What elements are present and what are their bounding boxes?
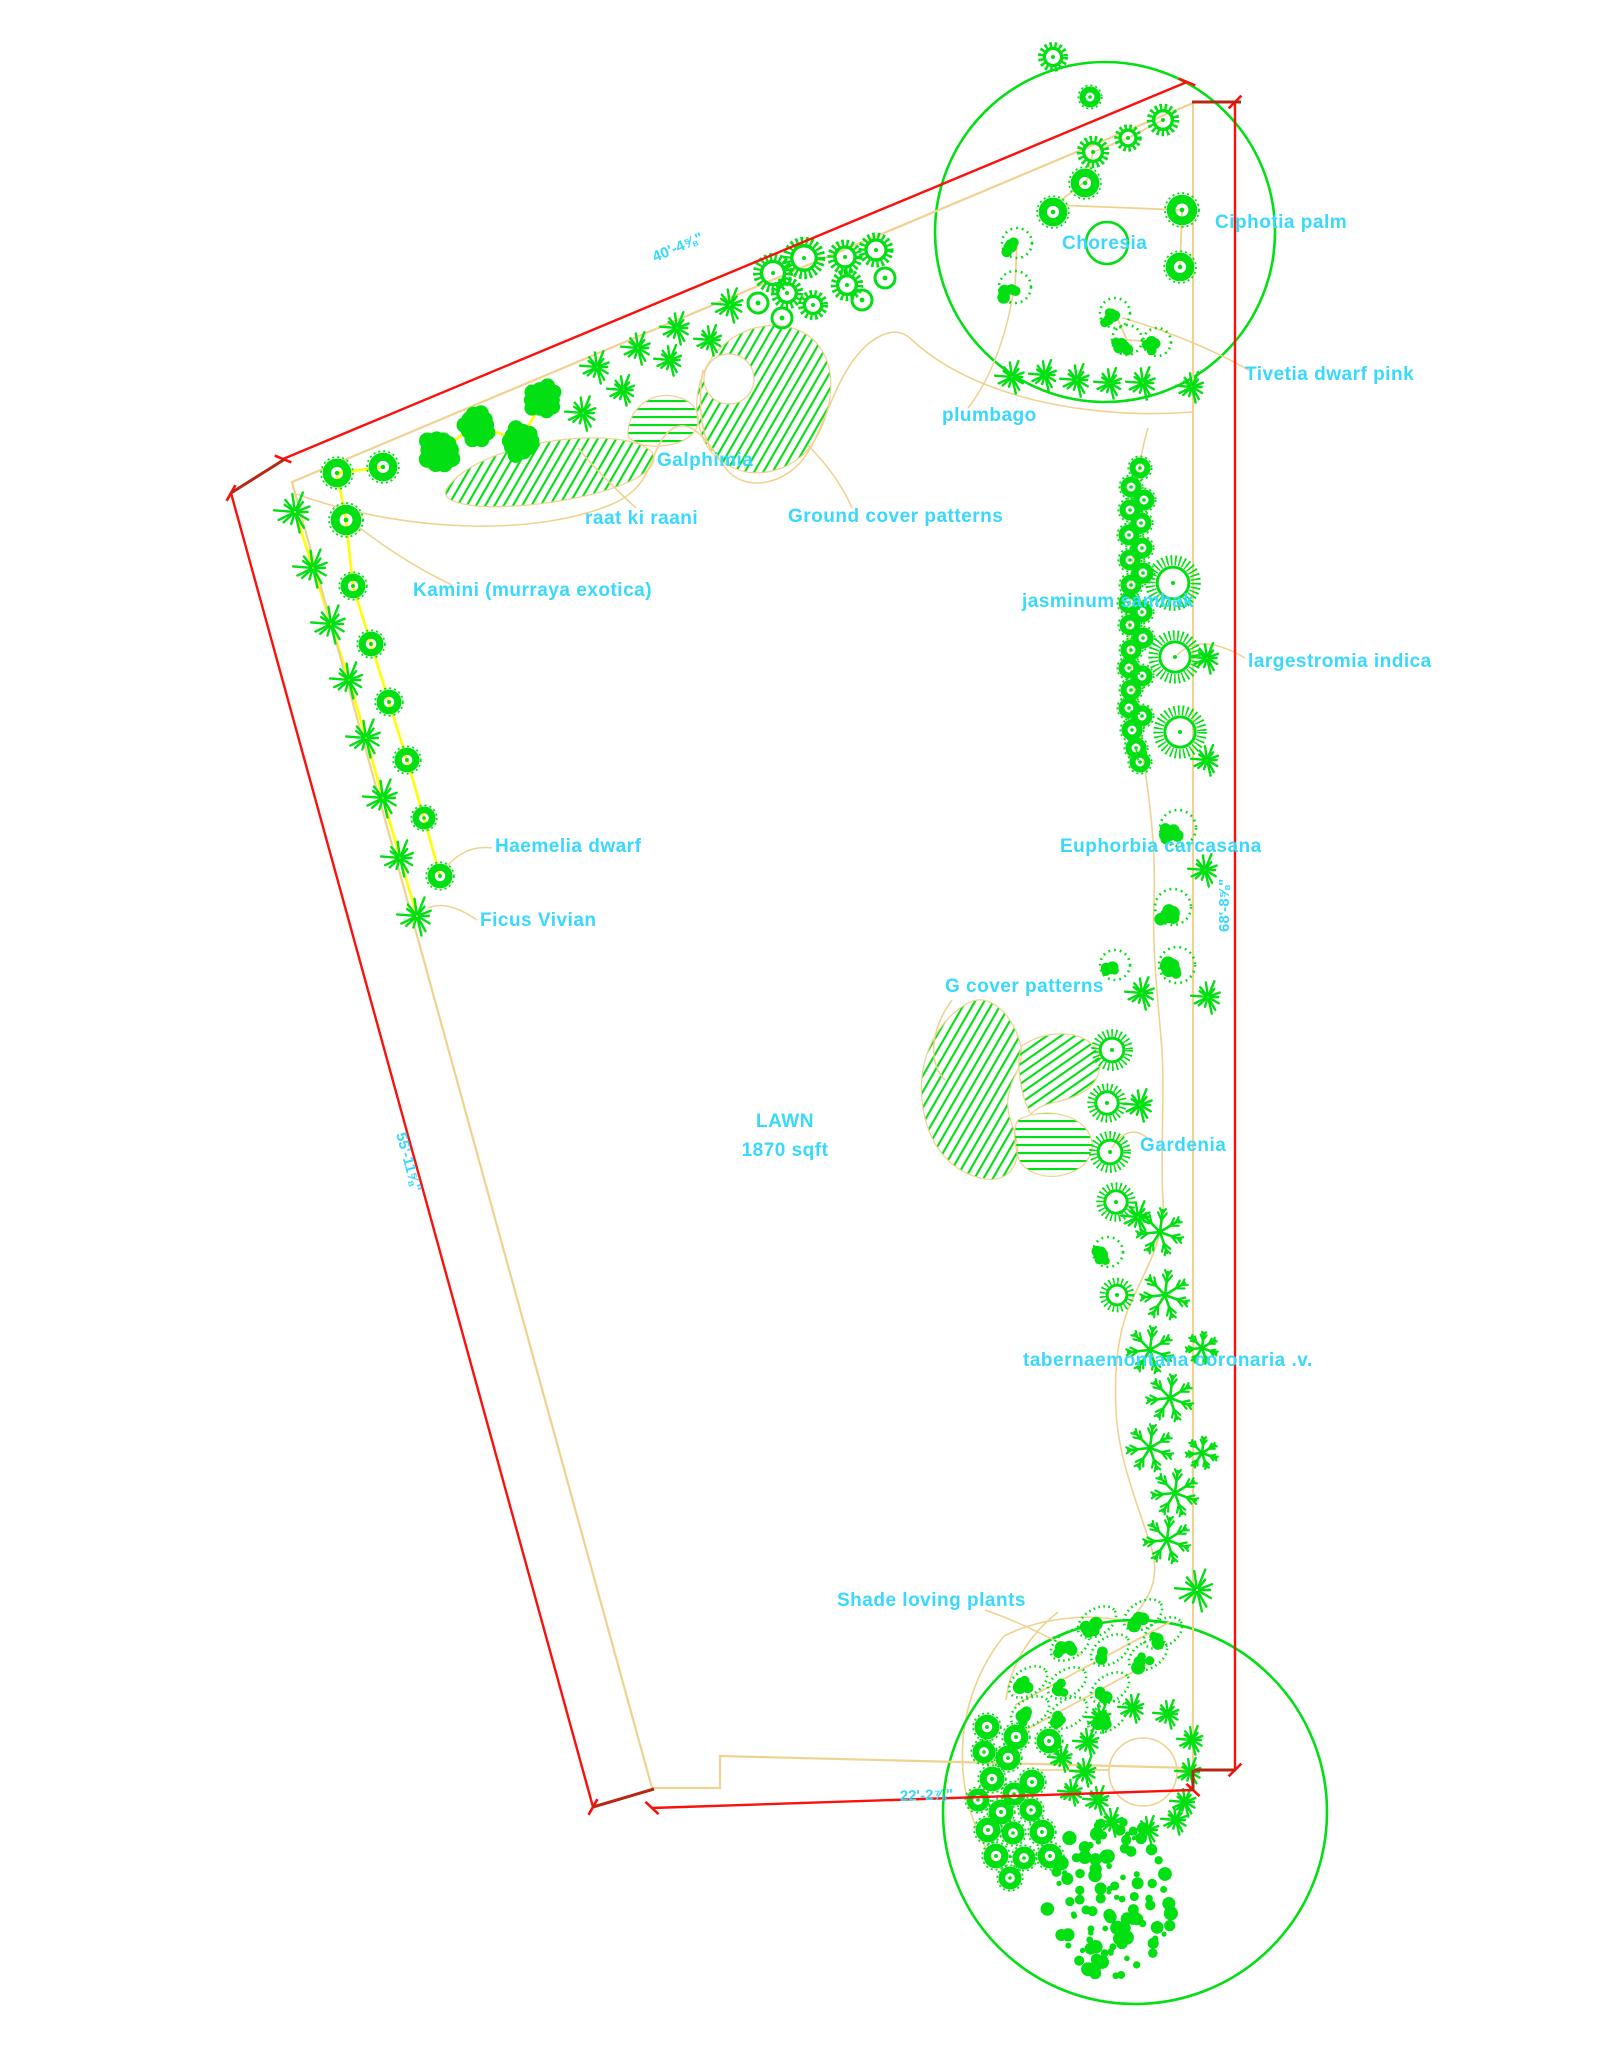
plant-open: [748, 293, 768, 313]
plant-star: [274, 493, 309, 533]
label-leader-line: [808, 445, 852, 508]
plant-star: [1175, 1758, 1200, 1787]
plant-label: Tivetia dwarf pink: [1245, 364, 1414, 385]
dimension-text: 68'-8⅝": [1216, 879, 1233, 932]
plant-dshrub: [1159, 947, 1195, 983]
plant-label: Gardenia: [1140, 1135, 1226, 1156]
plant-gear: [801, 293, 825, 317]
lawn-label: LAWN: [756, 1111, 814, 1132]
plant-label: Choresia: [1062, 233, 1147, 254]
plant-dshrub: [1100, 298, 1130, 328]
plant-dshrub: [1092, 1237, 1123, 1267]
plant-star: [1123, 1089, 1152, 1121]
groundcover-blob: [921, 1000, 1021, 1180]
plant-jring: [978, 1765, 1006, 1793]
plant-label: largestromia indica: [1248, 651, 1432, 672]
cad-canvas[interactable]: 40'-4⅝"55'-11⅝"68'-8⅝"22'-2⅞" Ciphotia p…: [0, 0, 1600, 2071]
plant-gear: [1117, 127, 1139, 149]
plant-star: [1094, 368, 1121, 398]
plant-ring: [329, 503, 363, 537]
plant-star: [694, 325, 721, 355]
plant-urchin: [1093, 1135, 1127, 1169]
plant-label: Shade loving plants: [837, 1590, 1026, 1611]
plant-gear: [834, 272, 860, 298]
plant-ring: [357, 630, 385, 658]
plant-star: [1176, 372, 1203, 402]
plant-label: Euphorbia carcasana: [1060, 836, 1262, 857]
plant-star: [1177, 1726, 1202, 1755]
plant-jring: [973, 1713, 1001, 1741]
plant-star: [1118, 1694, 1143, 1723]
plant-snow: [1143, 1516, 1190, 1563]
plant-bushy: [524, 378, 562, 418]
plant-snow: [1126, 1424, 1173, 1471]
plant-dshrub: [1154, 889, 1191, 925]
plant-star: [621, 332, 650, 364]
plant-ring: [393, 746, 421, 774]
plant-label: Ciphotia palm: [1215, 212, 1347, 233]
plant-star: [565, 396, 595, 430]
plant-star: [1153, 1700, 1178, 1729]
lawn-area-label: 1870 sqft: [742, 1140, 829, 1161]
plant-jring: [1128, 750, 1151, 773]
plant-label: Kamini (murraya exotica): [413, 580, 652, 601]
plant-snow: [1151, 1469, 1198, 1516]
plant-star: [330, 662, 362, 698]
plant-ring: [321, 457, 353, 489]
plant-urchin: [1103, 1281, 1132, 1310]
plant-doval: [1118, 1593, 1167, 1637]
plant-label: Ficus Vivian: [480, 910, 597, 931]
plant-gear: [831, 243, 859, 271]
plant-bushy: [419, 431, 460, 472]
plant-doval: [1123, 1633, 1173, 1678]
plant-label: Ground cover patterns: [788, 506, 1003, 527]
label-leader-line: [443, 848, 492, 872]
plant-star: [1191, 981, 1220, 1013]
plant-ring: [375, 688, 403, 716]
label-leader-line: [428, 906, 477, 920]
labels-layer: Ciphotia palmChoresiaTivetia dwarf pinkp…: [413, 212, 1432, 1611]
plant-ring: [1069, 167, 1101, 199]
plant-open: [852, 290, 872, 310]
landscape-plan-svg: 40'-4⅝"55'-11⅝"68'-8⅝"22'-2⅞" Ciphotia p…: [0, 0, 1600, 2071]
plant-gear: [1080, 139, 1106, 165]
label-leader-line: [352, 522, 452, 585]
plant-gear: [1041, 45, 1065, 69]
plant-open: [772, 308, 792, 328]
groundcover-blob: [1015, 1113, 1093, 1176]
plant-star: [654, 345, 681, 375]
plant-label: tabernaemontana coronaria .v.: [1023, 1350, 1313, 1371]
plant-star: [580, 351, 609, 383]
tan-circle: [1109, 1738, 1177, 1806]
plant-star: [1125, 977, 1154, 1009]
plant-dshrub: [1100, 950, 1130, 980]
plant-label: G cover patterns: [945, 976, 1104, 997]
plant-mass: [1041, 1818, 1178, 1979]
plant-jring: [974, 1816, 1002, 1844]
plant-dshrub: [1142, 328, 1171, 356]
plant-star: [1083, 1786, 1108, 1815]
plant-ring: [411, 805, 436, 830]
plant-jring: [1000, 1820, 1025, 1845]
plant-star: [1073, 1728, 1098, 1757]
label-leader-line: [968, 295, 1013, 408]
groundcover-blobs-layer: [446, 325, 1101, 1179]
plant-label: raat ki raani: [585, 508, 698, 529]
plant-urchin: [1091, 1087, 1123, 1119]
plant-star: [1070, 1758, 1095, 1787]
groundcover-hole: [704, 354, 754, 404]
plant-label: Galphimia: [657, 450, 753, 471]
plant-urchin: [1158, 710, 1202, 754]
plant-doval: [1072, 1600, 1121, 1644]
dimension-text: 55'-11⅝": [392, 1131, 425, 1194]
plant-ring: [1037, 196, 1069, 228]
plant-snow: [1140, 1270, 1189, 1319]
plant-ring: [426, 862, 454, 890]
boundary-corner-segment: [593, 1789, 654, 1807]
plant-ring: [1164, 251, 1196, 283]
plant-gear: [862, 236, 890, 264]
dimension-text: 40'-4⅝": [650, 229, 706, 265]
plant-star: [1058, 1779, 1082, 1806]
dimension-text: 22'-2⅞": [900, 1786, 954, 1805]
plant-ring: [339, 572, 367, 600]
plant-dshrub: [997, 271, 1031, 304]
plant-star: [1060, 364, 1089, 396]
plant-urchin: [1100, 1186, 1132, 1218]
plant-star: [381, 840, 413, 876]
plant-ring: [367, 451, 399, 483]
plant-star: [607, 375, 634, 405]
plant-star: [1191, 745, 1218, 775]
plant-label: Haemelia dwarf: [495, 836, 642, 857]
plant-jring: [971, 1739, 996, 1764]
plant-snow: [1186, 1437, 1218, 1469]
plant-jring: [1035, 1727, 1063, 1755]
plant-snow: [1146, 1374, 1193, 1421]
plant-star: [1126, 367, 1155, 399]
plant-label: jasminum sambak: [1021, 591, 1194, 612]
boundary-corner-segment: [231, 459, 285, 493]
dimension-line: 55'-11⅝": [227, 485, 598, 1815]
plant-open: [875, 268, 895, 288]
plant-ring: [1078, 85, 1101, 108]
plant-label: plumbago: [942, 405, 1037, 426]
